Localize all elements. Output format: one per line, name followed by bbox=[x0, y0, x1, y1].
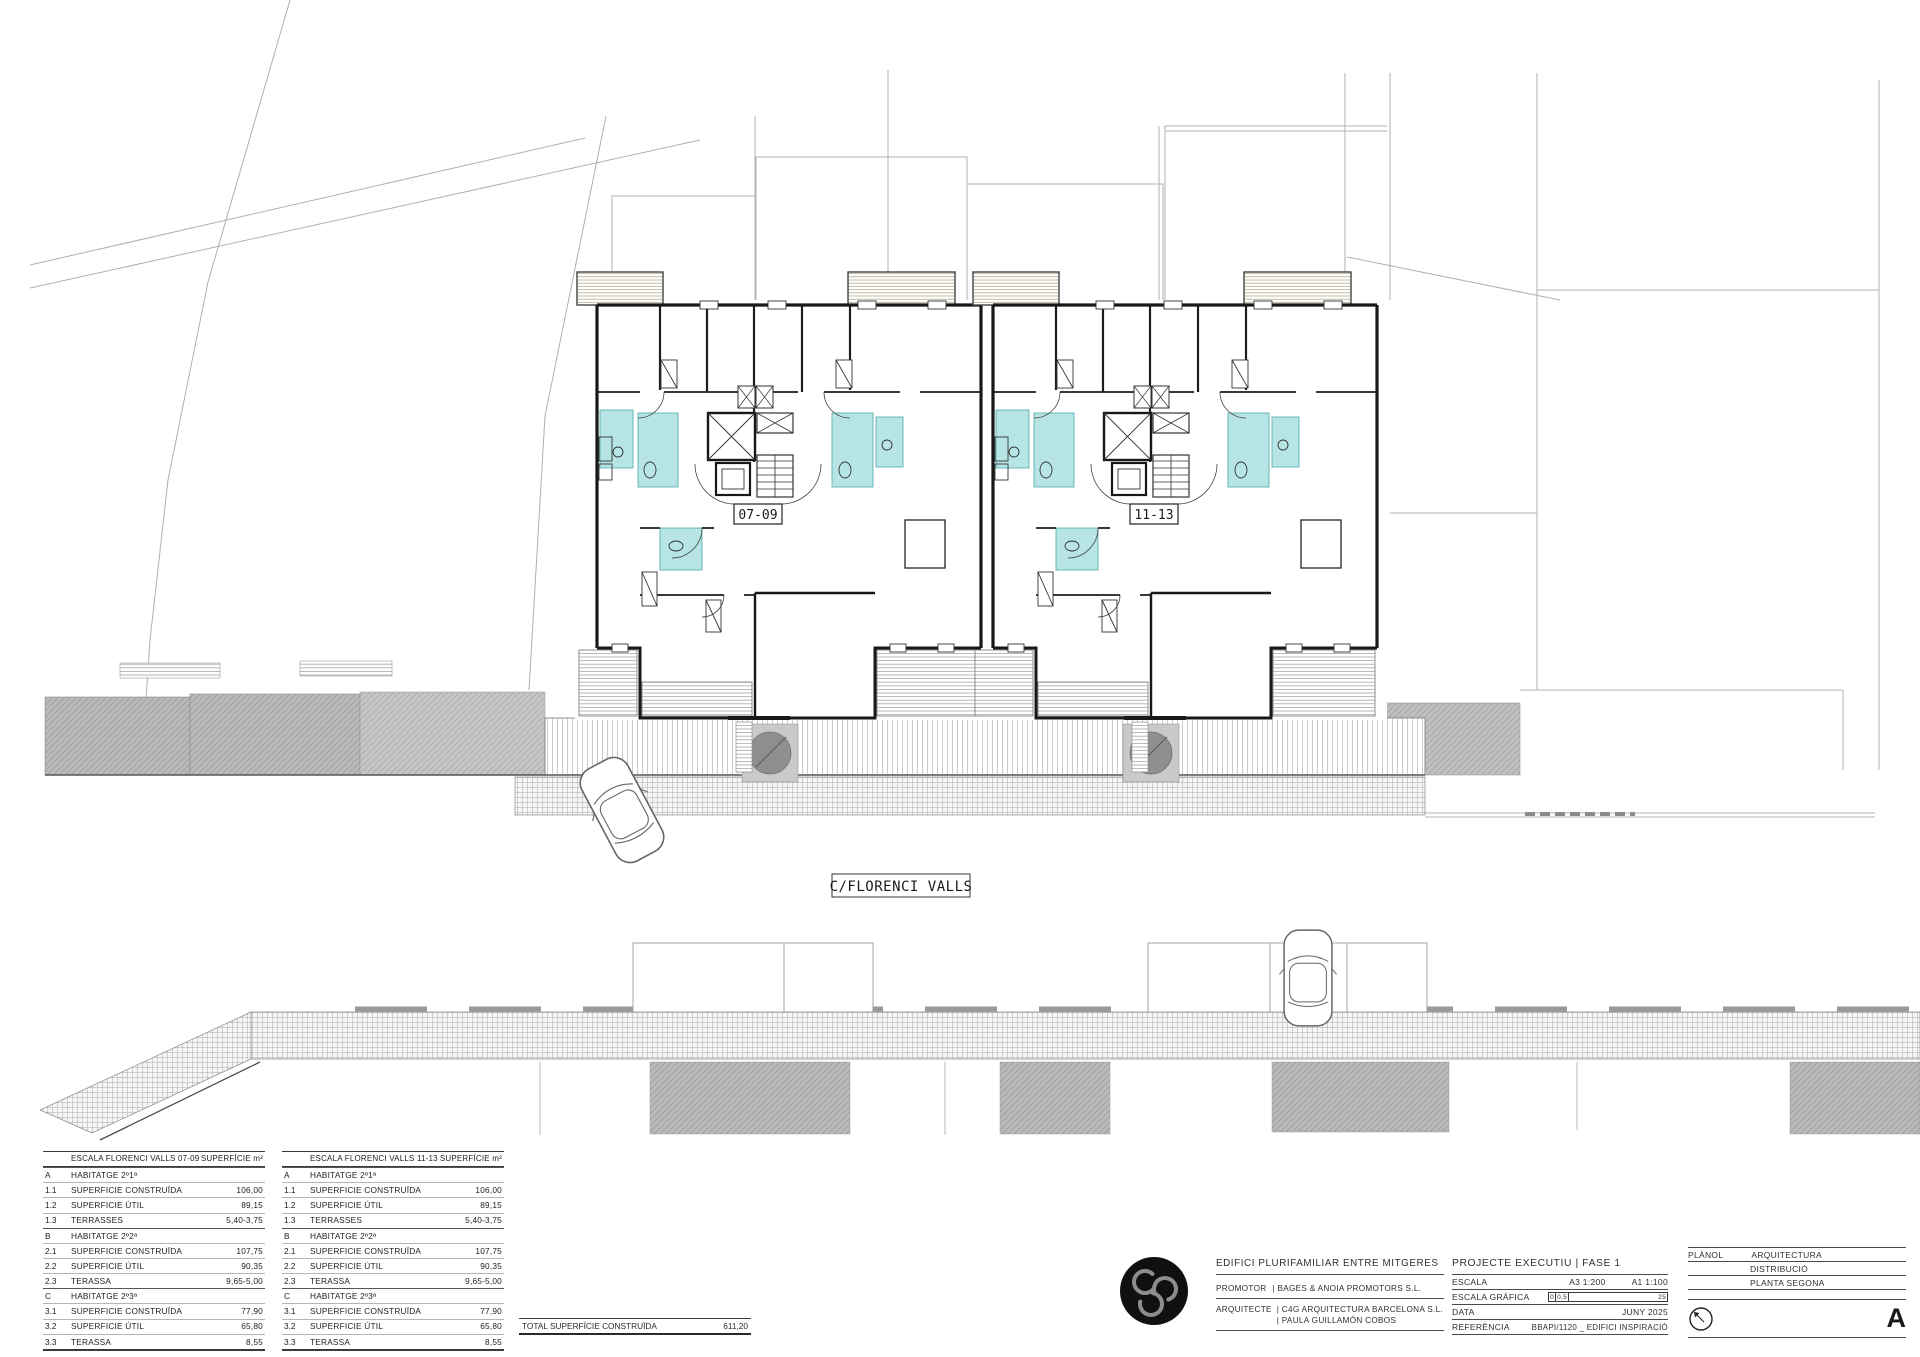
svg-text:11-13: 11-13 bbox=[1134, 508, 1173, 523]
street-tree-icon bbox=[1123, 724, 1179, 782]
table-row: BHABITATGE 2º2ª bbox=[43, 1228, 265, 1243]
svg-text:07-09: 07-09 bbox=[738, 508, 777, 523]
svg-text:C/FLORENCI VALLS: C/FLORENCI VALLS bbox=[830, 879, 973, 895]
title-block-project-info: PROJECTE EXECUTIU | FASE 1 ESCALA A3 1:2… bbox=[1452, 1258, 1668, 1335]
total-value: 611,20 bbox=[723, 1321, 748, 1331]
area-table-header: ESCALA FLORENCI VALLS 07-09 SUPERFÍCIE m… bbox=[43, 1152, 265, 1167]
unit-label-11-13: 11-13 bbox=[1130, 504, 1178, 524]
table-row: 3.2SUPERFICIE ÚTIL65,80 bbox=[282, 1319, 504, 1334]
architect-row: ARQUITECTE | C4G ARQUITECTURA BARCELONA … bbox=[1216, 1304, 1444, 1331]
total-label: TOTAL SUPERFÍCIE CONSTRUÏDA bbox=[522, 1321, 657, 1331]
scale-row: ESCALA A3 1:200 A1 1:100 bbox=[1452, 1275, 1668, 1290]
area-table-07-09: ESCALA FLORENCI VALLS 07-09 SUPERFÍCIE m… bbox=[43, 1151, 265, 1351]
table-row: 2.3TERASSA9,65-5,00 bbox=[43, 1273, 265, 1288]
neighbor-building-masses-south bbox=[650, 1062, 1920, 1134]
project-title: EDIFICI PLURIFAMILIAR ENTRE MITGERES bbox=[1216, 1258, 1444, 1275]
table-row: 1.1SUPERFICIE CONSTRUÏDA106,00 bbox=[43, 1182, 265, 1197]
table-row: CHABITATGE 2º3ª bbox=[43, 1288, 265, 1303]
table-row: 3.2SUPERFICIE ÚTIL65,80 bbox=[43, 1319, 265, 1334]
title-block-sheet-info: PLÀNOL ARQUITECTURA DISTRIBUCIÓ PLANTA S… bbox=[1688, 1247, 1906, 1338]
reference-row: REFERÈNCIA BBAPI/1120 _ EDIFICI INSPIRAC… bbox=[1452, 1320, 1668, 1335]
table-row: 1.2SUPERFICIE ÚTIL89,15 bbox=[282, 1197, 504, 1212]
table-row: AHABITATGE 2º1ª bbox=[282, 1167, 504, 1182]
unit-label-07-09: 07-09 bbox=[734, 504, 782, 524]
table-row: 3.3TERASSA8,55 bbox=[282, 1334, 504, 1349]
table-row: 2.1SUPERFICIE CONSTRUÏDA107,75 bbox=[43, 1243, 265, 1258]
sheet-letter: A bbox=[1887, 1303, 1907, 1334]
graphic-scale-bar: 0 0,5 25 bbox=[1548, 1292, 1668, 1302]
area-table-header: ESCALA FLORENCI VALLS 11-13 SUPERFÍCIE m… bbox=[282, 1152, 504, 1167]
total-built-area-row: TOTAL SUPERFÍCIE CONSTRUÏDA 611,20 bbox=[519, 1318, 751, 1335]
sheet-id-row: A bbox=[1688, 1300, 1906, 1338]
street-name-label: C/FLORENCI VALLS bbox=[830, 874, 973, 897]
table-row: 3.3TERASSA8,55 bbox=[43, 1334, 265, 1349]
title-block-identity: EDIFICI PLURIFAMILIAR ENTRE MITGERES PRO… bbox=[1216, 1258, 1444, 1331]
table-row: 2.3TERASSA9,65-5,00 bbox=[282, 1273, 504, 1288]
date-row: DATA JUNY 2025 bbox=[1452, 1305, 1668, 1320]
studio-logo bbox=[1119, 1256, 1189, 1326]
north-arrow-icon bbox=[1688, 1306, 1714, 1332]
table-row: AHABITATGE 2º1ª bbox=[43, 1167, 265, 1182]
table-row: 2.2SUPERFICIE ÚTIL90,35 bbox=[43, 1258, 265, 1273]
table-row: 2.2SUPERFICIE ÚTIL90,35 bbox=[282, 1258, 504, 1273]
sheet-subtitle-1: DISTRIBUCIÓ bbox=[1688, 1262, 1906, 1276]
table-row: 1.3TERRASSES5,40-3,75 bbox=[282, 1213, 504, 1228]
table-row: 1.2SUPERFICIE ÚTIL89,15 bbox=[43, 1197, 265, 1212]
promoter-row: PROMOTOR | BAGES & ANOIA PROMOTORS S.L. bbox=[1216, 1283, 1444, 1299]
table-row: 2.1SUPERFICIE CONSTRUÏDA107,75 bbox=[282, 1243, 504, 1258]
table-row: BHABITATGE 2º2ª bbox=[282, 1228, 504, 1243]
parked-car-icon-south bbox=[1279, 930, 1336, 1026]
table-row: 1.3TERRASSES5,40-3,75 bbox=[43, 1213, 265, 1228]
table-row: 3.1SUPERFICIE CONSTRUÏDA77,90 bbox=[282, 1303, 504, 1318]
phase-title: PROJECTE EXECUTIU | FASE 1 bbox=[1452, 1258, 1668, 1275]
table-row: 1.1SUPERFICIE CONSTRUÏDA106,00 bbox=[282, 1182, 504, 1197]
sheet-category-row: PLÀNOL ARQUITECTURA bbox=[1688, 1247, 1906, 1262]
sidewalk bbox=[545, 718, 1425, 775]
area-table-11-13: ESCALA FLORENCI VALLS 11-13 SUPERFÍCIE m… bbox=[282, 1151, 504, 1351]
sheet-subtitle-2: PLANTA SEGONA bbox=[1688, 1276, 1906, 1290]
graphic-scale-row: ESCALA GRÀFICA 0 0,5 25 bbox=[1452, 1290, 1668, 1305]
table-row: 3.1SUPERFICIE CONSTRUÏDA77,90 bbox=[43, 1303, 265, 1318]
south-site-plan bbox=[40, 930, 1920, 1140]
drawing-sheet: 07-09 11-13 C/FLORENCI VALLS ESCALA FLOR… bbox=[0, 0, 1920, 1357]
table-row: CHABITATGE 2º3ª bbox=[282, 1288, 504, 1303]
building-plan: 07-09 11-13 bbox=[575, 272, 1387, 772]
